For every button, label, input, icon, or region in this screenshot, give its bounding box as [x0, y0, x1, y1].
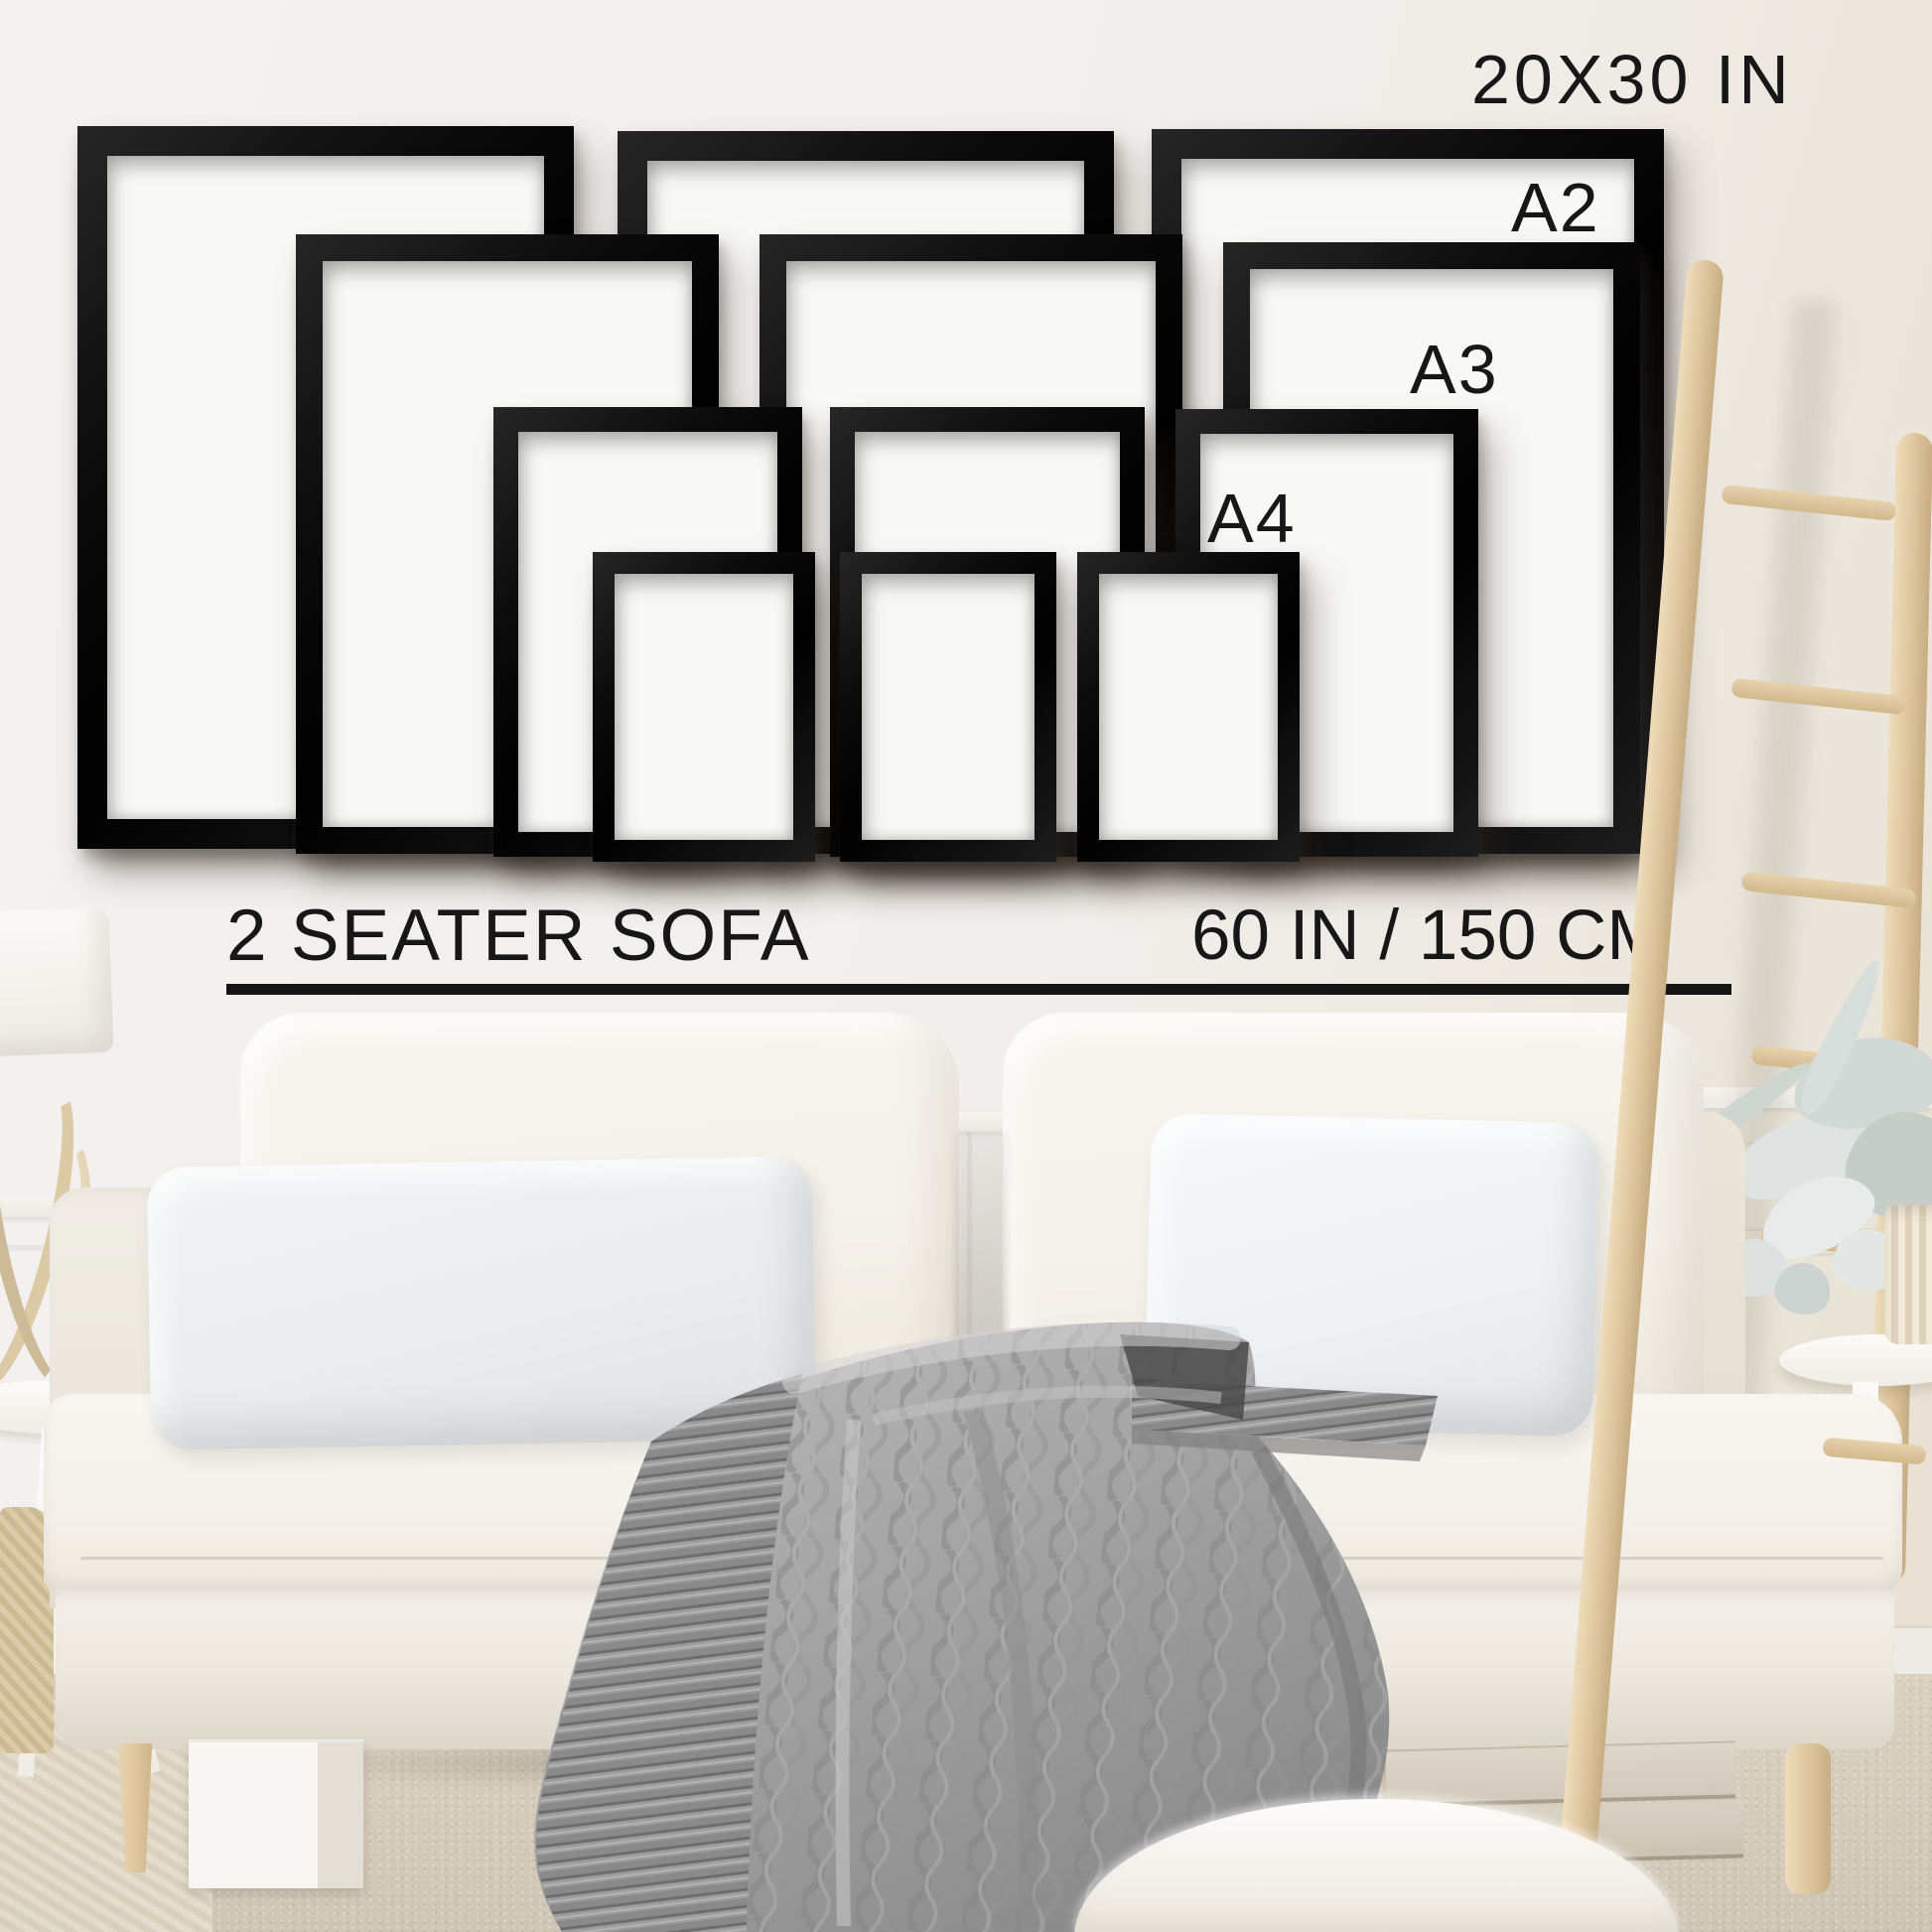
room-scene: 20X30 IN A2 A3 A4 2 SEATER SOFA 60 IN / … — [0, 0, 1932, 1932]
